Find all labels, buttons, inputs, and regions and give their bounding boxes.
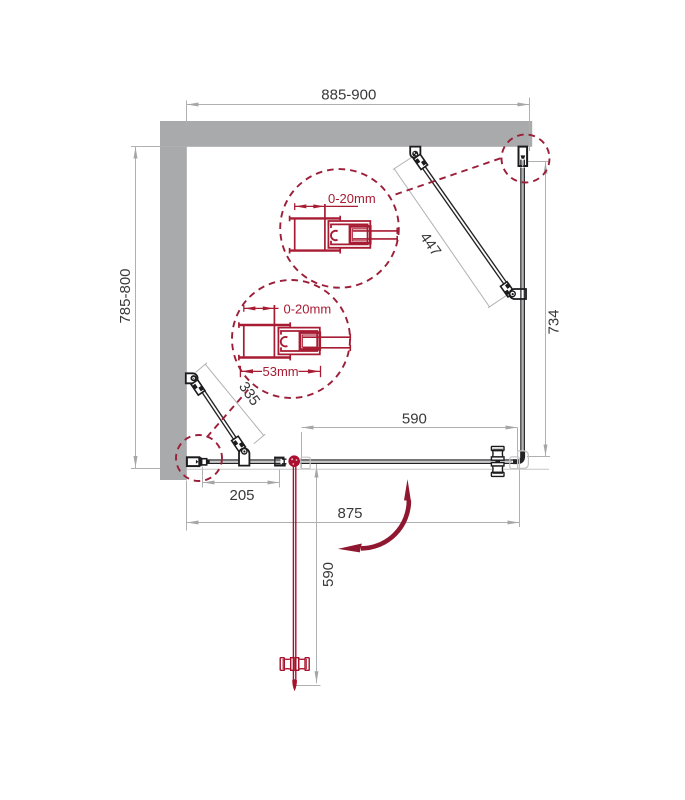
svg-text:0-20mm: 0-20mm (284, 302, 332, 317)
svg-text:205: 205 (229, 487, 254, 504)
svg-text:785-800: 785-800 (117, 268, 134, 323)
svg-text:335: 335 (235, 379, 263, 409)
svg-text:0-20mm: 0-20mm (328, 191, 376, 206)
svg-text:590: 590 (320, 562, 337, 587)
svg-text:734: 734 (546, 309, 563, 334)
svg-text:875: 875 (337, 505, 362, 522)
svg-text:53mm: 53mm (263, 364, 299, 379)
svg-text:590: 590 (402, 411, 427, 428)
svg-text:885-900: 885-900 (321, 87, 376, 104)
svg-text:447: 447 (416, 229, 444, 259)
